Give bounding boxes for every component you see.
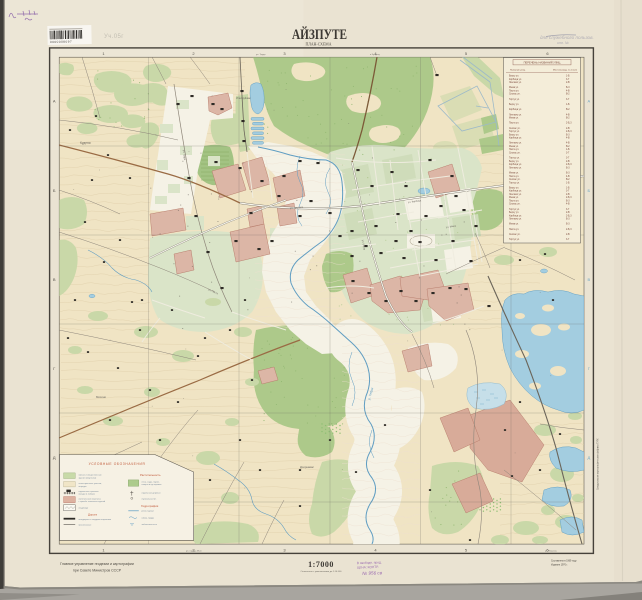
svg-text:жилые и общественные: жилые и общественные (79, 475, 103, 477)
svg-text:2-Б,3: 2-Б,3 (566, 123, 572, 125)
svg-text:А: А (53, 99, 56, 104)
svg-text:Берзу ул.: Берзу ул. (509, 76, 519, 78)
svg-text:ул. Юрьева: ул. Юрьева (545, 551, 557, 553)
svg-text:2-В: 2-В (566, 234, 570, 236)
svg-text:В: В (53, 277, 56, 282)
svg-text:4-В: 4-В (566, 143, 570, 145)
svg-text:при Совете Министров СССР: при Совете Министров СССР (73, 569, 122, 573)
svg-text:автодороги с твердым покрытием: автодороги с твердым покрытием (79, 519, 112, 521)
svg-text:леса, сады, парки,: леса, сады, парки, (142, 481, 160, 483)
svg-text:Сколас ул.: Сколас ул. (509, 94, 521, 96)
svg-text:Берзу ул.: Берзу ул. (509, 161, 519, 163)
svg-text:Местонахожд. на плане: Местонахожд. на плане (553, 70, 578, 72)
svg-text:Кудени: Кудени (80, 141, 91, 145)
svg-text:Тиргус ул.: Тиргус ул. (509, 239, 520, 241)
svg-text:Кирбица ул.: Кирбица ул. (509, 79, 522, 81)
svg-text:Лиепаяс ул.: Лиепаяс ул. (509, 219, 522, 221)
svg-text:инв. №: инв. № (557, 41, 569, 45)
svg-text:луговая растит.: луговая растит. (142, 498, 157, 500)
svg-text:Кирбица ул.: Кирбица ул. (509, 164, 522, 166)
svg-text:Лиепаяс ул.: Лиепаяс ул. (509, 82, 522, 84)
svg-text:4-В: 4-В (566, 90, 570, 92)
svg-text:для служебного пользов.: для служебного пользов. (540, 35, 594, 40)
svg-text:В: В (587, 277, 590, 282)
svg-text:Берзу ул.: Берзу ул. (509, 134, 519, 136)
svg-text:Лиепаяс ул.: Лиепаяс ул. (509, 167, 522, 169)
svg-text:Берзу ул.: Берзу ул. (509, 212, 519, 214)
svg-text:отдельные деревья: отдельные деревья (142, 493, 161, 495)
svg-text:4-В: 4-В (566, 138, 570, 140)
svg-text:Берзу ул.: Берзу ул. (509, 104, 519, 106)
svg-text:Гидрография: Гидрография (141, 504, 159, 508)
svg-text:1-Б: 1-Б (566, 104, 570, 106)
svg-text:Паста ул.: Паста ул. (509, 90, 519, 92)
svg-text:Берзу ул.: Берзу ул. (509, 187, 519, 189)
svg-text:Межа ул.: Межа ул. (509, 224, 519, 226)
svg-text:Межа ул.: Межа ул. (509, 173, 519, 175)
svg-text:1-Б: 1-Б (566, 149, 570, 151)
svg-text:огороды: огороды (79, 486, 88, 488)
svg-text:Название улиц: Название улиц (510, 70, 526, 72)
svg-text:Мисини: Мисини (96, 395, 106, 399)
svg-text:Составлено в 1969 году: Составлено в 1969 году (551, 561, 577, 563)
svg-text:2-В: 2-В (566, 128, 570, 130)
svg-text:Паста ул.: Паста ул. (509, 123, 519, 125)
svg-text:4-В: 4-В (566, 176, 570, 178)
svg-text:Сколас ул.: Сколас ул. (509, 179, 521, 181)
svg-text:с преобл. каменных зданий: с преобл. каменных зданий (79, 500, 106, 503)
svg-text:Сколас ул.: Сколас ул. (509, 128, 521, 130)
svg-text:1-Б: 1-Б (566, 76, 570, 78)
svg-text:Тиргус ул.: Тиргус ул. (509, 158, 520, 160)
svg-text:УСЛОВНЫЕ ОБОЗНАЧЕНИЯ: УСЛОВНЫЕ ОБОЗНАЧЕНИЯ (89, 462, 146, 466)
svg-text:ПЕРЕЧЕНЬ НАЗВАНИЙ УЛИЦ: ПЕРЕЧЕНЬ НАЗВАНИЙ УЛИЦ (524, 60, 561, 64)
svg-text:Тиргус ул.: Тиргус ул. (509, 182, 520, 184)
svg-text:Кирбица ул.: Кирбица ул. (509, 191, 522, 193)
svg-text:ул. города Мын: ул. города Мын (186, 551, 202, 553)
svg-text:Растительность: Растительность (140, 473, 161, 477)
svg-text:АЙЗПУТЕ: АЙЗПУТЕ (292, 26, 347, 43)
svg-text:заболоченность: заболоченность (142, 524, 158, 526)
svg-text:ПЛАН-СХЕМА: ПЛАН-СХЕМА (306, 42, 332, 47)
svg-text:1:7000: 1:7000 (308, 560, 334, 569)
svg-text:Упесмуйжас: Упесмуйжас (236, 96, 251, 100)
svg-text:Д: Д (53, 455, 56, 460)
svg-text:озера, пруды: озера, пруды (142, 517, 155, 519)
svg-text:Тиргус ул.: Тиргус ул. (509, 131, 520, 133)
svg-text:Дзирнавас: Дзирнавас (300, 465, 314, 469)
svg-text:Б: Б (587, 188, 590, 193)
svg-text:2-Б,3: 2-Б,3 (566, 197, 572, 199)
svg-text:1-Б: 1-Б (566, 187, 570, 189)
svg-text:Сколас ул.: Сколас ул. (509, 153, 521, 155)
svg-text:Паста ул.: Паста ул. (509, 176, 519, 178)
svg-text:Лиепаяс ул.: Лиепаяс ул. (509, 194, 522, 196)
svg-text:ЦЕНА: КОНТР.: ЦЕНА: КОНТР. (357, 565, 379, 570)
svg-text:Лиепаяс ул.: Лиепаяс ул. (509, 143, 522, 145)
svg-text:2-Б,3: 2-Б,3 (566, 229, 572, 231)
svg-text:1-Б: 1-Б (566, 182, 570, 184)
svg-text:Свердловская картографическая: Свердловская картографическая фабрика ГУ… (597, 438, 600, 490)
svg-text:Дороги: Дороги (88, 512, 98, 516)
svg-text:2-В: 2-В (566, 161, 570, 163)
svg-text:Межа ул.: Межа ул. (509, 118, 519, 120)
svg-text:Паста ул.: Паста ул. (509, 229, 519, 231)
svg-text:ул. Труда: ул. Труда (256, 54, 266, 56)
svg-text:2-В: 2-В (566, 82, 570, 84)
svg-text:Кирбица ул.: Кирбица ул. (509, 138, 522, 140)
svg-text:Уч.05г: Уч.05г (104, 34, 124, 40)
svg-text:2-В: 2-В (566, 194, 570, 196)
svg-text:2-Б,3: 2-Б,3 (566, 164, 572, 166)
svg-text:реки и ручьи: реки и ручьи (142, 511, 155, 513)
svg-text:проселочные: проселочные (79, 524, 93, 526)
svg-text:4-В: 4-В (566, 114, 570, 116)
svg-text:кладбище: кладбище (79, 508, 90, 510)
svg-text:здания (кварталы): здания (кварталы) (79, 477, 97, 479)
svg-text:в Кулдигу: в Кулдигу (370, 54, 381, 56)
svg-text:Паста ул.: Паста ул. (509, 200, 519, 202)
svg-text:А: А (587, 99, 590, 104)
svg-text:скверы и кустарники: скверы и кустарники (142, 484, 163, 486)
svg-text:2-Б,3: 2-Б,3 (566, 131, 572, 133)
svg-text:Главное управление геодезии и: Главное управление геодезии и картографи… (60, 562, 134, 566)
svg-text:Межа ул.: Межа ул. (509, 146, 519, 148)
svg-text:2-В: 2-В (566, 212, 570, 214)
svg-text:Тиргус ул.: Тиргус ул. (509, 209, 520, 211)
svg-text:капитальные кварталы: капитальные кварталы (79, 498, 102, 500)
svg-text:№ 956 св: № 956 св (362, 570, 383, 576)
svg-text:Отпечатано с уменьшением до 1:: Отпечатано с уменьшением до 1:10 000 (301, 571, 343, 573)
svg-text:Межа ул.: Межа ул. (509, 87, 519, 89)
svg-text:Издание 1970 г.: Издание 1970 г. (551, 565, 568, 567)
svg-text:Межа ул.: Межа ул. (509, 197, 519, 199)
svg-text:ограды и заборы: ограды и заборы (79, 494, 96, 496)
svg-text:Кирбица ул.: Кирбица ул. (509, 215, 522, 217)
svg-text:2-Б,3: 2-Б,3 (566, 215, 572, 217)
svg-text:Б: Б (53, 188, 56, 193)
svg-text:Лиепаяс ул.: Лиепаяс ул. (509, 114, 522, 116)
svg-text:Паста ул.: Паста ул. (509, 149, 519, 151)
svg-text:незастроенные участки,: незастроенные участки, (79, 483, 103, 485)
svg-text:Д: Д (587, 455, 590, 460)
svg-text:Сколас ул.: Сколас ул. (509, 204, 521, 206)
svg-text:4-В: 4-В (566, 204, 570, 206)
svg-text:Сколас ул.: Сколас ул. (509, 234, 521, 236)
svg-text:Кирбица ул.: Кирбица ул. (509, 109, 522, 111)
svg-text:0000008097: 0000008097 (50, 40, 72, 45)
svg-text:Тиргус ул.: Тиргус ул. (509, 99, 520, 101)
